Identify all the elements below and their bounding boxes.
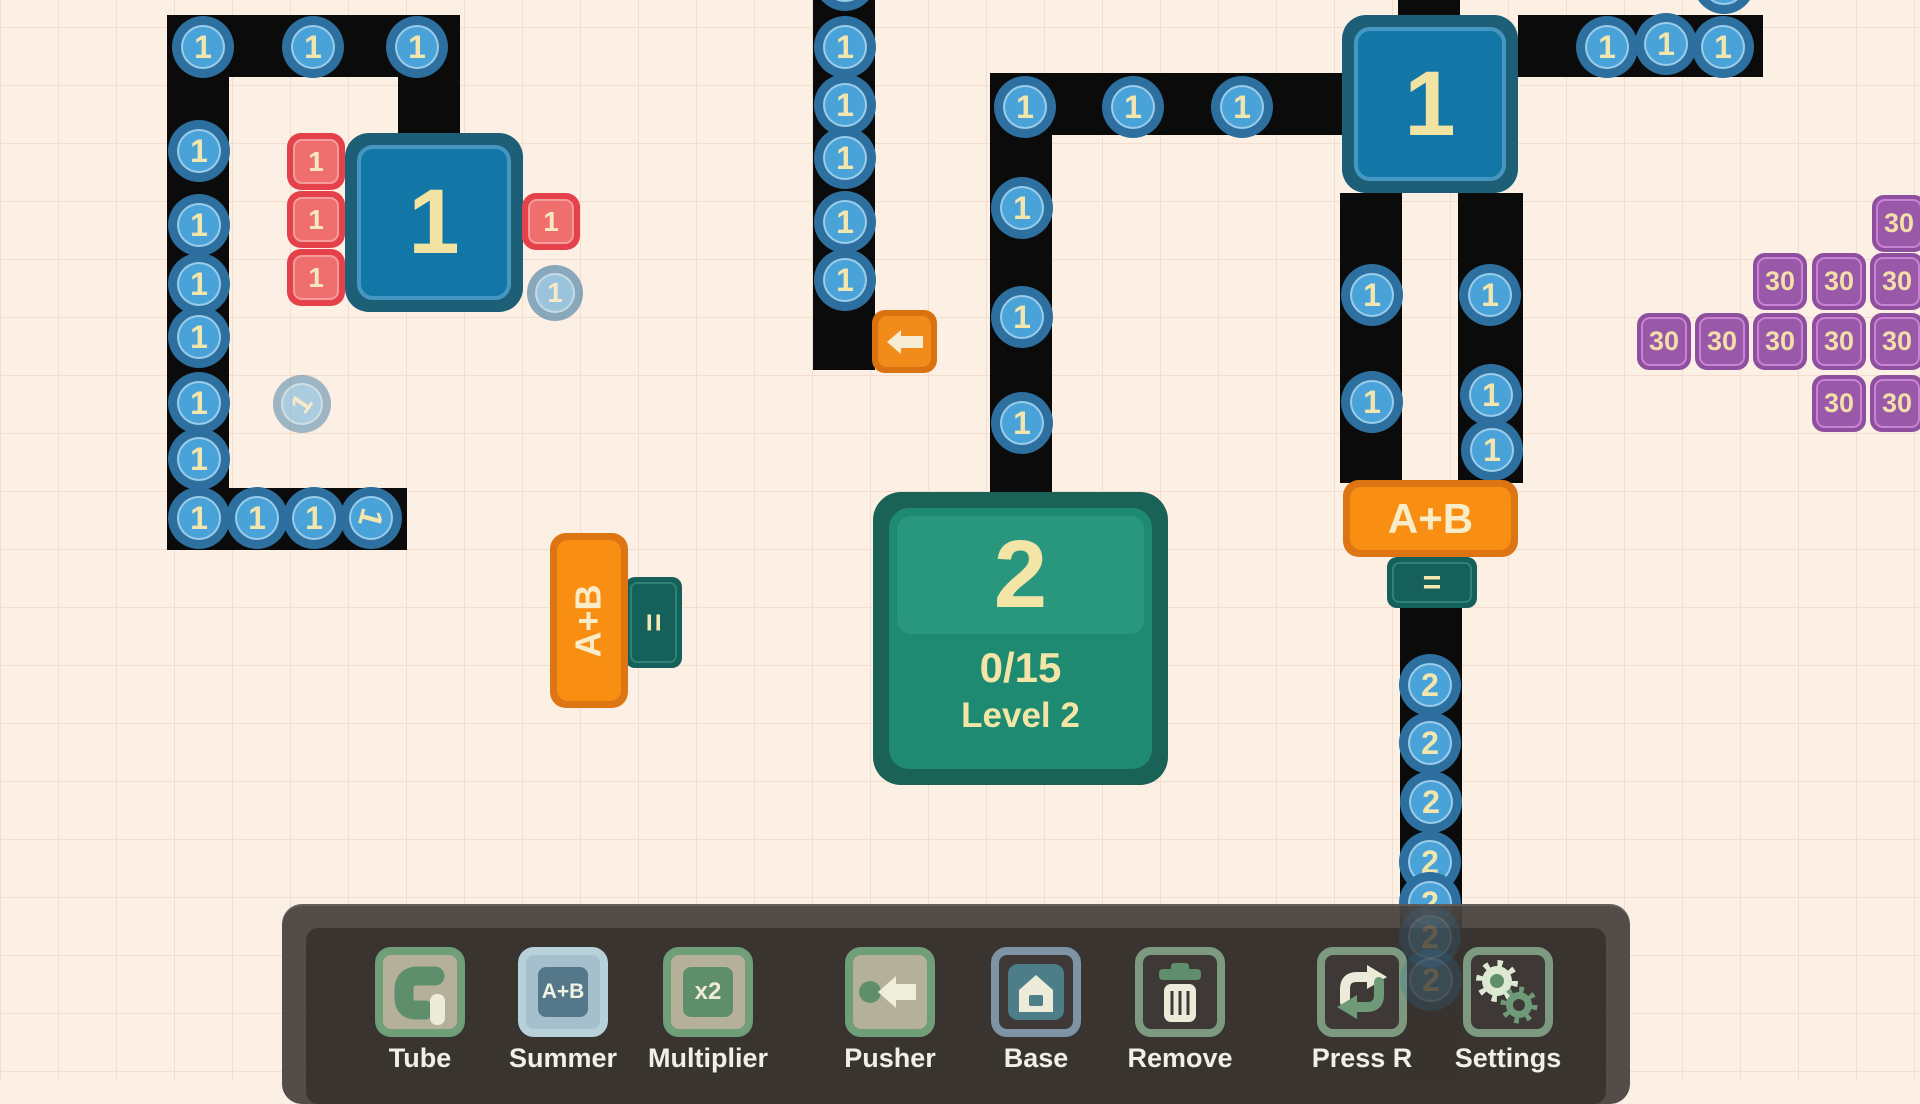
summer-formula: A+B (1388, 495, 1473, 543)
summer-block[interactable]: A+B (550, 533, 628, 708)
token-value: 1 (408, 31, 426, 63)
summer-formula: A+B (568, 584, 610, 657)
red-chip-face: 1 (528, 199, 574, 244)
purple-chip-face: 30 (1874, 257, 1920, 306)
number-token: 2 (1400, 771, 1462, 833)
token-value: 1 (190, 268, 208, 300)
token-value: 1 (1363, 386, 1381, 418)
number-token: 1 (991, 177, 1053, 239)
token-value: 2 (1421, 669, 1439, 701)
token-value: 2 (1422, 964, 1440, 996)
token-face: 1 (1000, 186, 1045, 231)
tool-summer[interactable]: A+BSummer (483, 947, 643, 1072)
token-face: 1 (292, 496, 337, 541)
number-token: 1 (273, 375, 331, 433)
token-value: 2 (1422, 786, 1440, 818)
token-face: 1 (823, 136, 868, 181)
tool-remove-icon[interactable] (1135, 947, 1225, 1037)
purple-chip-face: 30 (1874, 379, 1920, 428)
token-value: 1 (1013, 407, 1031, 439)
token-face: 1 (1701, 25, 1746, 70)
token-face: 1 (1000, 401, 1045, 446)
token-face: 1 (1470, 428, 1515, 473)
token-value: 1 (1481, 279, 1499, 311)
tool-summer-icon[interactable]: A+B (518, 947, 608, 1037)
tool-press-r-icon[interactable] (1317, 947, 1407, 1037)
token-face: 2 (1408, 663, 1453, 708)
token-face: 1 (1000, 295, 1045, 340)
token-value: 1 (190, 443, 208, 475)
base-progress: 0/15 (980, 644, 1062, 692)
token-value: 1 (190, 135, 208, 167)
token-behind-toolbar: 2 (1400, 949, 1462, 1011)
token-value: 1 (1124, 91, 1142, 123)
purple-chip-value: 30 (1824, 266, 1854, 297)
token-value: 1 (353, 505, 389, 530)
token-face: 1 (1644, 22, 1689, 67)
number-token: 1 (814, 16, 876, 78)
summer-face: A+B (1350, 487, 1511, 550)
number-token: 1 (991, 286, 1053, 348)
summer-output-block[interactable]: = (625, 577, 682, 668)
token-value: 1 (1483, 434, 1501, 466)
token-value: 1 (1233, 91, 1251, 123)
token-face: 1 (1220, 85, 1265, 130)
token-face: 1 (823, 83, 868, 128)
red-chip-value: 1 (308, 146, 324, 178)
tool-pusher-label: Pusher (844, 1045, 936, 1072)
number-token: 1 (172, 16, 234, 78)
number-token: 1 (1460, 364, 1522, 426)
red-number-chip: 1 (287, 191, 345, 248)
purple-chip-value: 30 (1882, 326, 1912, 357)
number-token: 1 (991, 392, 1053, 454)
token-value: 1 (1598, 31, 1616, 63)
token-face: 2 (1409, 958, 1454, 1003)
purple-chip-face: 30 (1641, 317, 1687, 366)
purple-chip-face: 30 (1816, 379, 1862, 428)
equals-sign: = (635, 613, 672, 632)
summer-tool-icon: A+B (538, 967, 588, 1017)
token-face: 1 (395, 25, 440, 70)
tool-pusher-icon[interactable] (845, 947, 935, 1037)
number-token: 1 (1461, 419, 1523, 481)
purple-chip-value: 30 (1765, 266, 1795, 297)
purple-number-chip: 30 (1870, 253, 1920, 310)
token-face: 1 (1702, 0, 1747, 5)
token-face: 1 (349, 496, 394, 541)
purple-chip-value: 30 (1765, 326, 1795, 357)
token-value: 1 (1013, 301, 1031, 333)
base-target-panel: 2 (897, 516, 1144, 634)
token-value: 1 (190, 321, 208, 353)
token-face: 1 (281, 383, 323, 425)
tool-multiplier-label: Multiplier (648, 1045, 768, 1072)
number-token: 1 (168, 120, 230, 182)
token-value: 1 (1657, 28, 1675, 60)
number-token: 1 (1692, 16, 1754, 78)
purple-number-chip: 30 (1870, 313, 1920, 370)
number-token: 1 (168, 306, 230, 368)
red-chip-value: 1 (308, 262, 324, 294)
multiplier-tool-icon: x2 (683, 967, 733, 1017)
base-tool-icon (1008, 964, 1064, 1020)
token-value: 1 (194, 31, 212, 63)
purple-chip-face: 30 (1816, 257, 1862, 306)
purple-chip-value: 30 (1824, 388, 1854, 419)
token-face: 1 (177, 315, 222, 360)
purple-number-chip: 30 (1812, 253, 1866, 310)
number-token: 1 (168, 372, 230, 434)
token-face: 1 (1111, 85, 1156, 130)
tool-remove[interactable]: Remove (1100, 947, 1260, 1072)
token-face: 1 (177, 129, 222, 174)
number-token: 2 (1399, 712, 1461, 774)
purple-number-chip: 30 (1637, 313, 1691, 370)
red-number-chip: 1 (522, 193, 580, 250)
purple-chip-value: 30 (1882, 266, 1912, 297)
token-value: 1 (1363, 279, 1381, 311)
token-face: 1 (1350, 273, 1395, 318)
token-value: 1 (1013, 192, 1031, 224)
equals-sign: = (1423, 564, 1442, 601)
number-token: 1 (994, 76, 1056, 138)
purple-chip-value: 30 (1882, 388, 1912, 419)
number-token: 1 (340, 487, 402, 549)
token-face: 2 (1408, 721, 1453, 766)
summer-face: A+B (557, 540, 621, 701)
purple-chip-face: 30 (1699, 317, 1745, 366)
token-value: 1 (304, 31, 322, 63)
tool-base-icon[interactable] (991, 947, 1081, 1037)
purple-chip-value: 30 (1707, 326, 1737, 357)
token-face: 1 (1350, 380, 1395, 425)
number-token: 1 (1635, 13, 1697, 75)
token-value: 1 (190, 209, 208, 241)
number-token: 1 (1341, 371, 1403, 433)
number-token: 1 (1102, 76, 1164, 138)
purple-number-chip: 30 (1870, 375, 1920, 432)
number-token: 1 (1341, 264, 1403, 326)
token-face: 2 (1409, 780, 1454, 825)
gear-icon (1471, 955, 1545, 1029)
number-token: 1 (283, 487, 345, 549)
purple-chip-face: 30 (1816, 317, 1862, 366)
purple-number-chip: 30 (1872, 195, 1920, 252)
purple-number-chip: 30 (1753, 313, 1807, 370)
token-face: 1 (177, 437, 222, 482)
purple-chip-value: 30 (1824, 326, 1854, 357)
number-token: 1 (168, 428, 230, 490)
summer-output-face: = (630, 582, 677, 663)
tool-remove-label: Remove (1127, 1045, 1232, 1072)
pusher-tool-icon (853, 955, 927, 1029)
tool-base[interactable]: Base (956, 947, 1116, 1072)
token-face: 1 (1468, 273, 1513, 318)
token-face: 1 (823, 0, 868, 2)
tool-tube-icon[interactable] (375, 947, 465, 1037)
number-token: 1 (168, 194, 230, 256)
number-token: 2 (1399, 654, 1461, 716)
base-level: Level 2 (961, 696, 1080, 736)
token-face: 1 (177, 262, 222, 307)
token-face: 1 (823, 200, 868, 245)
number-token: 1 (1459, 264, 1521, 326)
token-face: 1 (291, 25, 336, 70)
token-value: 2 (1421, 727, 1439, 759)
token-value: 1 (836, 206, 854, 238)
token-face: 1 (535, 273, 575, 313)
swap-arrows-icon (1325, 955, 1399, 1029)
tube-segment[interactable] (1340, 193, 1402, 483)
token-value: 1 (836, 142, 854, 174)
purple-chip-face: 30 (1874, 317, 1920, 366)
tool-summer-label: Summer (509, 1045, 617, 1072)
purple-number-chip: 30 (1695, 313, 1749, 370)
purple-chip-face: 30 (1876, 199, 1920, 248)
red-chip-face: 1 (293, 255, 339, 300)
token-face: 1 (177, 203, 222, 248)
tool-press-r-label: Press R (1312, 1045, 1413, 1072)
number-source-face: 1 (357, 145, 511, 300)
number-token: 1 (527, 265, 583, 321)
number-source-box[interactable]: 1 (1342, 15, 1518, 193)
token-value: 1 (836, 31, 854, 63)
tool-base-label: Base (1004, 1045, 1069, 1072)
token-value: 1 (836, 264, 854, 296)
token-face: 1 (181, 25, 226, 70)
summer-output-block[interactable]: = (1387, 557, 1477, 608)
number-token: 1 (1693, 0, 1755, 14)
red-chip-face: 1 (293, 139, 339, 184)
tool-multiplier[interactable]: x2Multiplier (628, 947, 788, 1072)
token-value: 1 (248, 502, 266, 534)
tool-tube[interactable]: Tube (340, 947, 500, 1072)
token-value: 1 (305, 502, 323, 534)
number-token: 1 (814, 191, 876, 253)
red-number-chip: 1 (287, 133, 345, 190)
base-collector[interactable]: 20/15Level 2 (873, 492, 1168, 785)
token-value: 1 (286, 390, 318, 419)
number-token: 1 (226, 487, 288, 549)
number-token: 1 (814, 249, 876, 311)
tool-tube-label: Tube (389, 1045, 452, 1072)
number-token: 1 (282, 16, 344, 78)
token-face: 1 (177, 496, 222, 541)
token-face: 1 (235, 496, 280, 541)
tube-icon (383, 955, 457, 1029)
number-token: 1 (168, 487, 230, 549)
base-face: 20/15Level 2 (889, 508, 1152, 769)
token-value: 1 (836, 89, 854, 121)
number-token: 1 (814, 127, 876, 189)
source-number: 1 (408, 170, 459, 275)
base-target-number: 2 (994, 520, 1047, 630)
number-source-box[interactable]: 1 (345, 133, 523, 312)
number-token: 1 (386, 16, 448, 78)
red-chip-face: 1 (293, 197, 339, 242)
token-value: 1 (1714, 31, 1732, 63)
purple-chip-value: 30 (1884, 208, 1914, 239)
token-value: 1 (1482, 379, 1500, 411)
purple-chip-value: 30 (1649, 326, 1679, 357)
purple-chip-face: 30 (1757, 257, 1803, 306)
number-source-face: 1 (1354, 27, 1506, 181)
token-face: 1 (1003, 85, 1048, 130)
tool-settings-label: Settings (1455, 1045, 1562, 1072)
token-face: 1 (823, 25, 868, 70)
token-face: 1 (1585, 25, 1630, 70)
number-token: 1 (1576, 16, 1638, 78)
summer-block[interactable]: A+B (1343, 480, 1518, 557)
purple-number-chip: 30 (1753, 253, 1807, 310)
token-value: 1 (547, 279, 563, 307)
source-number: 1 (1404, 52, 1455, 157)
summer-output-face: = (1392, 562, 1472, 603)
token-value: 1 (190, 387, 208, 419)
token-value: 1 (1016, 91, 1034, 123)
purple-number-chip: 30 (1812, 375, 1866, 432)
red-chip-value: 1 (543, 206, 559, 238)
tool-settings-icon[interactable] (1463, 947, 1553, 1037)
red-chip-value: 1 (308, 204, 324, 236)
red-number-chip: 1 (287, 249, 345, 306)
token-face: 1 (823, 258, 868, 303)
tool-multiplier-icon[interactable]: x2 (663, 947, 753, 1037)
trash-icon (1143, 955, 1217, 1029)
token-face: 1 (1469, 373, 1514, 418)
token-value: 1 (190, 502, 208, 534)
number-token: 1 (1211, 76, 1273, 138)
purple-number-chip: 30 (1812, 313, 1866, 370)
tool-pusher[interactable]: Pusher (810, 947, 970, 1072)
token-face: 1 (177, 381, 222, 426)
purple-chip-face: 30 (1757, 317, 1803, 366)
pusher-face (878, 316, 931, 367)
arrow-left-icon (885, 325, 925, 359)
pusher-block[interactable] (872, 310, 937, 373)
